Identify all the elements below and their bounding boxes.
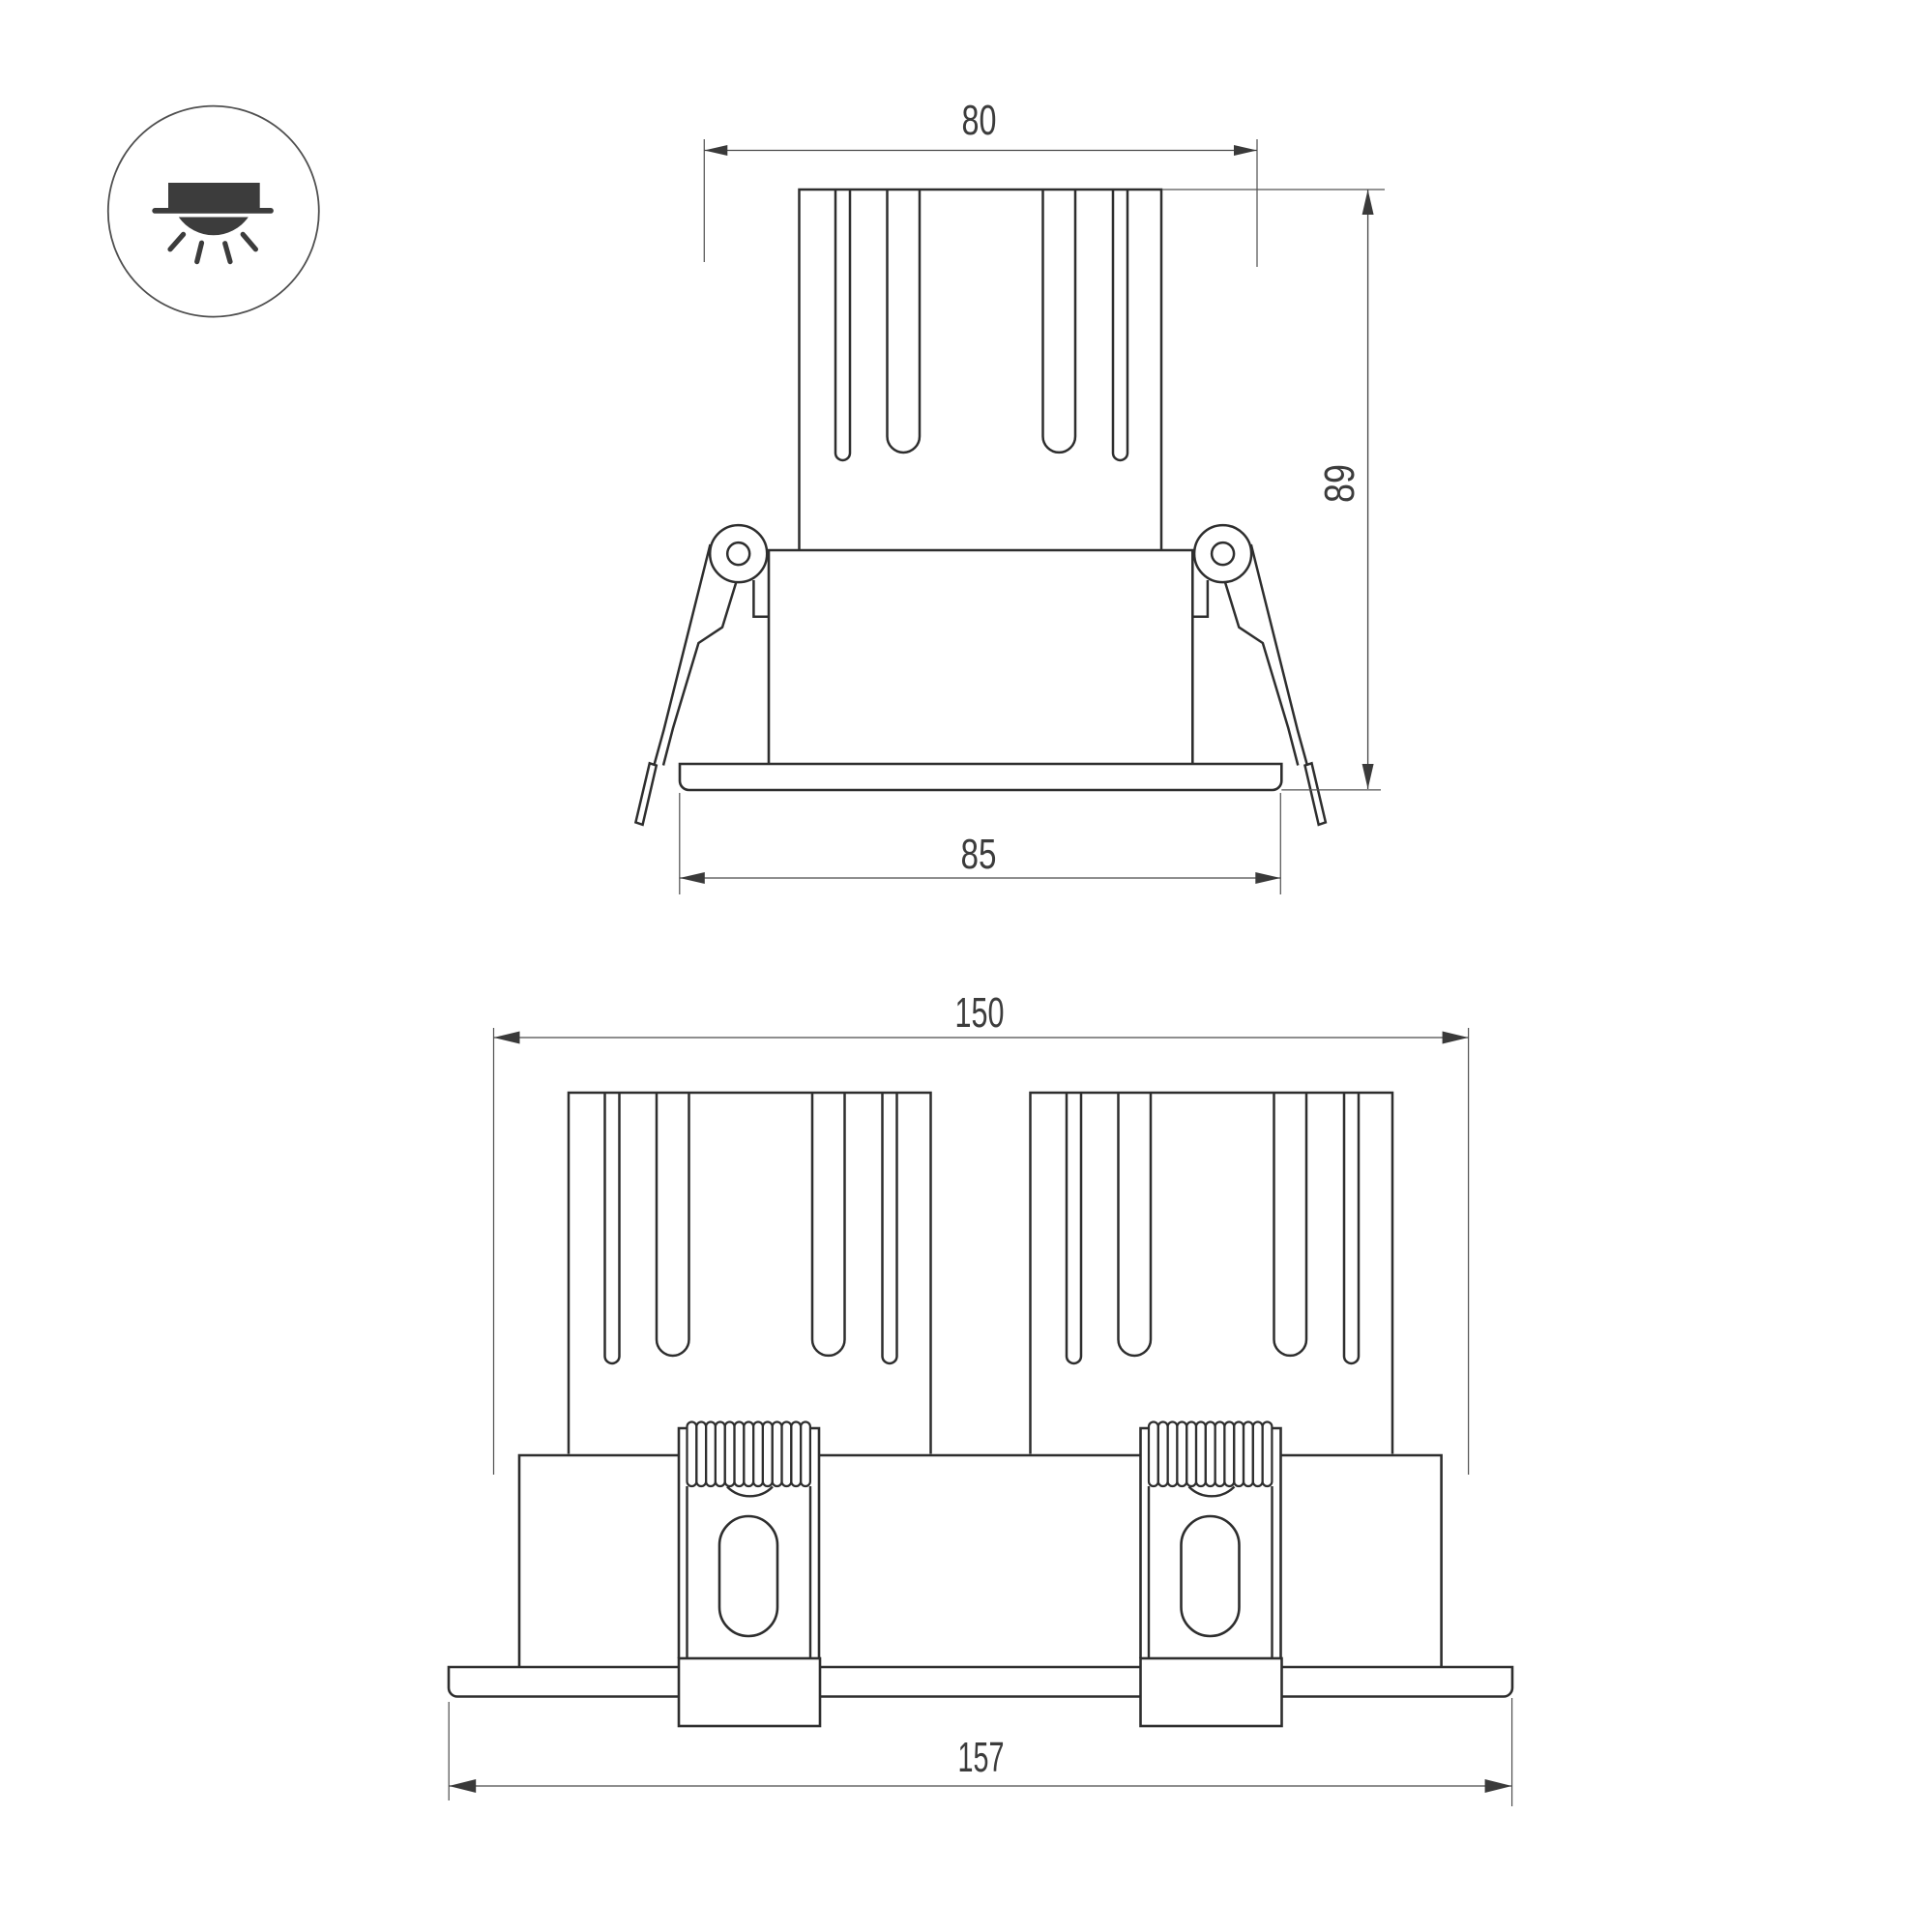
svg-text:157: 157	[958, 1734, 1005, 1781]
svg-text:85: 85	[961, 831, 997, 878]
svg-text:80: 80	[962, 97, 997, 144]
svg-text:89: 89	[1316, 464, 1363, 503]
svg-text:150: 150	[955, 989, 1005, 1037]
